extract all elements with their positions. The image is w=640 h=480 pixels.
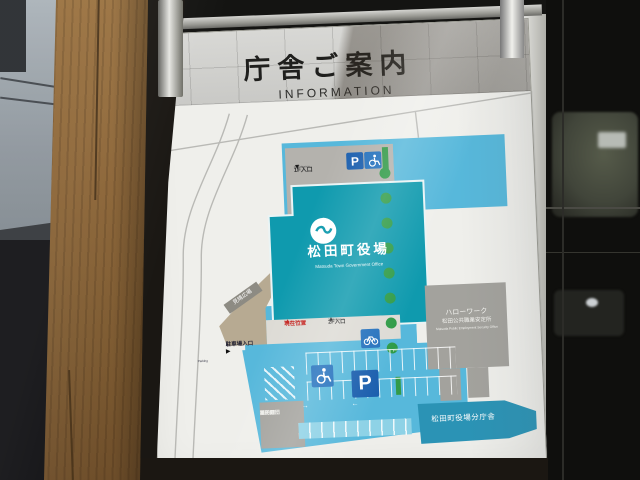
parking-entrance-arrow-icon: ▶	[226, 349, 231, 355]
entrance-2f-en: 2F Entrance	[328, 317, 344, 322]
lane-arrow: ←	[351, 400, 358, 407]
hellowork-label: ハローワーク 松田公共職業安定所 Matsuda Public Employme…	[426, 306, 508, 332]
entrance-1f-arrow-icon: ▼	[294, 165, 301, 172]
you-are-here-en: You are here	[284, 319, 301, 324]
parking-entrance-jp: 駐車場入口	[225, 339, 253, 348]
information-signboard: 庁舎ご案内 INFORMATION	[139, 18, 547, 476]
glass-door-reflection	[546, 0, 640, 480]
sign-title: 庁舎ご案内	[140, 19, 530, 91]
car-reflection	[554, 290, 624, 336]
bicycle-icon	[360, 329, 380, 349]
parking-entrance-label: 駐車場入口 ▶ Parking	[197, 339, 260, 360]
wheelchair-icon	[311, 365, 334, 388]
metal-pole	[500, 0, 524, 58]
metal-pole	[158, 0, 183, 97]
site-map: ← → ← P P	[143, 91, 548, 477]
parking-icon: P	[351, 370, 379, 398]
parking-icon: P	[346, 152, 364, 170]
bottom-frame-rail	[138, 458, 548, 480]
headlight-glint	[586, 298, 598, 307]
wood-crack	[94, 0, 99, 200]
dark-foliage	[0, 0, 26, 72]
glass-edge-line	[562, 0, 564, 480]
hatched-no-parking-zone	[264, 366, 295, 400]
parking-entrance-en: Parking	[198, 359, 208, 363]
hill-reflection	[552, 112, 638, 217]
door-frame-line	[546, 207, 640, 209]
hilltop-building-reflection	[598, 132, 626, 148]
door-frame-line	[546, 252, 640, 253]
wheelchair-icon	[364, 151, 382, 169]
lane-arrow: →	[301, 403, 308, 410]
lane-arrow: ←	[391, 347, 398, 354]
signboard-photo: 庁舎ご案内 INFORMATION	[0, 0, 640, 480]
fire-line3: 第一分団	[260, 410, 280, 418]
wood-crack	[68, 370, 74, 480]
